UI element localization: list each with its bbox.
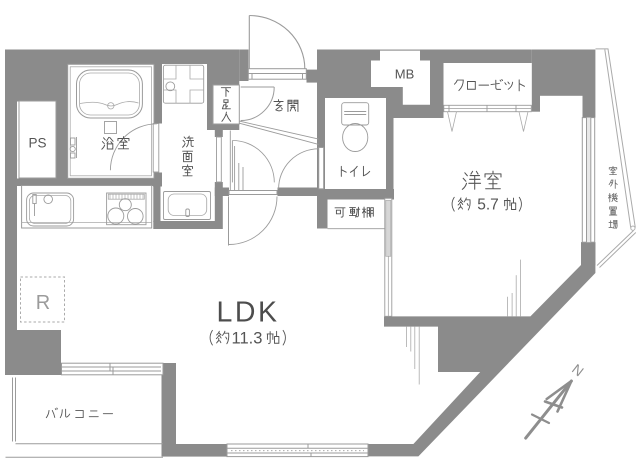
svg-text:MB: MB (395, 67, 415, 82)
svg-text:N: N (569, 361, 587, 380)
svg-text:PS: PS (28, 136, 46, 151)
svg-text:R: R (36, 292, 50, 314)
svg-text:11.3: 11.3 (232, 330, 263, 348)
svg-text:LDK: LDK (217, 297, 280, 329)
svg-text:5.7: 5.7 (477, 197, 499, 214)
